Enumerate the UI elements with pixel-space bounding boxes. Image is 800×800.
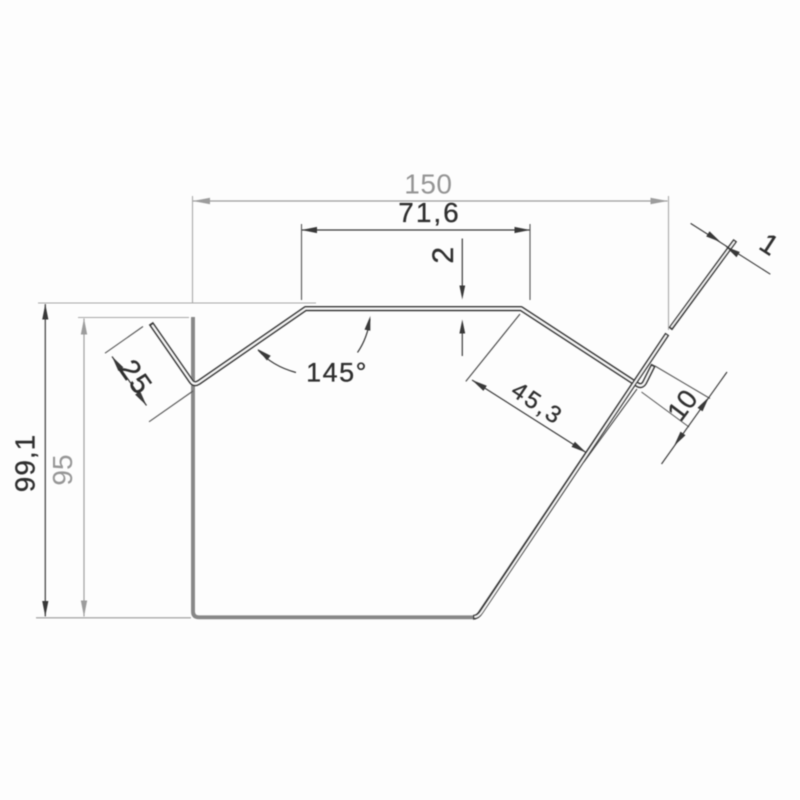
svg-text:2: 2 — [427, 247, 460, 264]
svg-text:95: 95 — [47, 454, 78, 485]
svg-text:71,6: 71,6 — [398, 197, 461, 228]
svg-text:145°: 145° — [306, 358, 368, 388]
svg-text:99,1: 99,1 — [9, 434, 40, 493]
svg-text:150: 150 — [404, 169, 452, 200]
